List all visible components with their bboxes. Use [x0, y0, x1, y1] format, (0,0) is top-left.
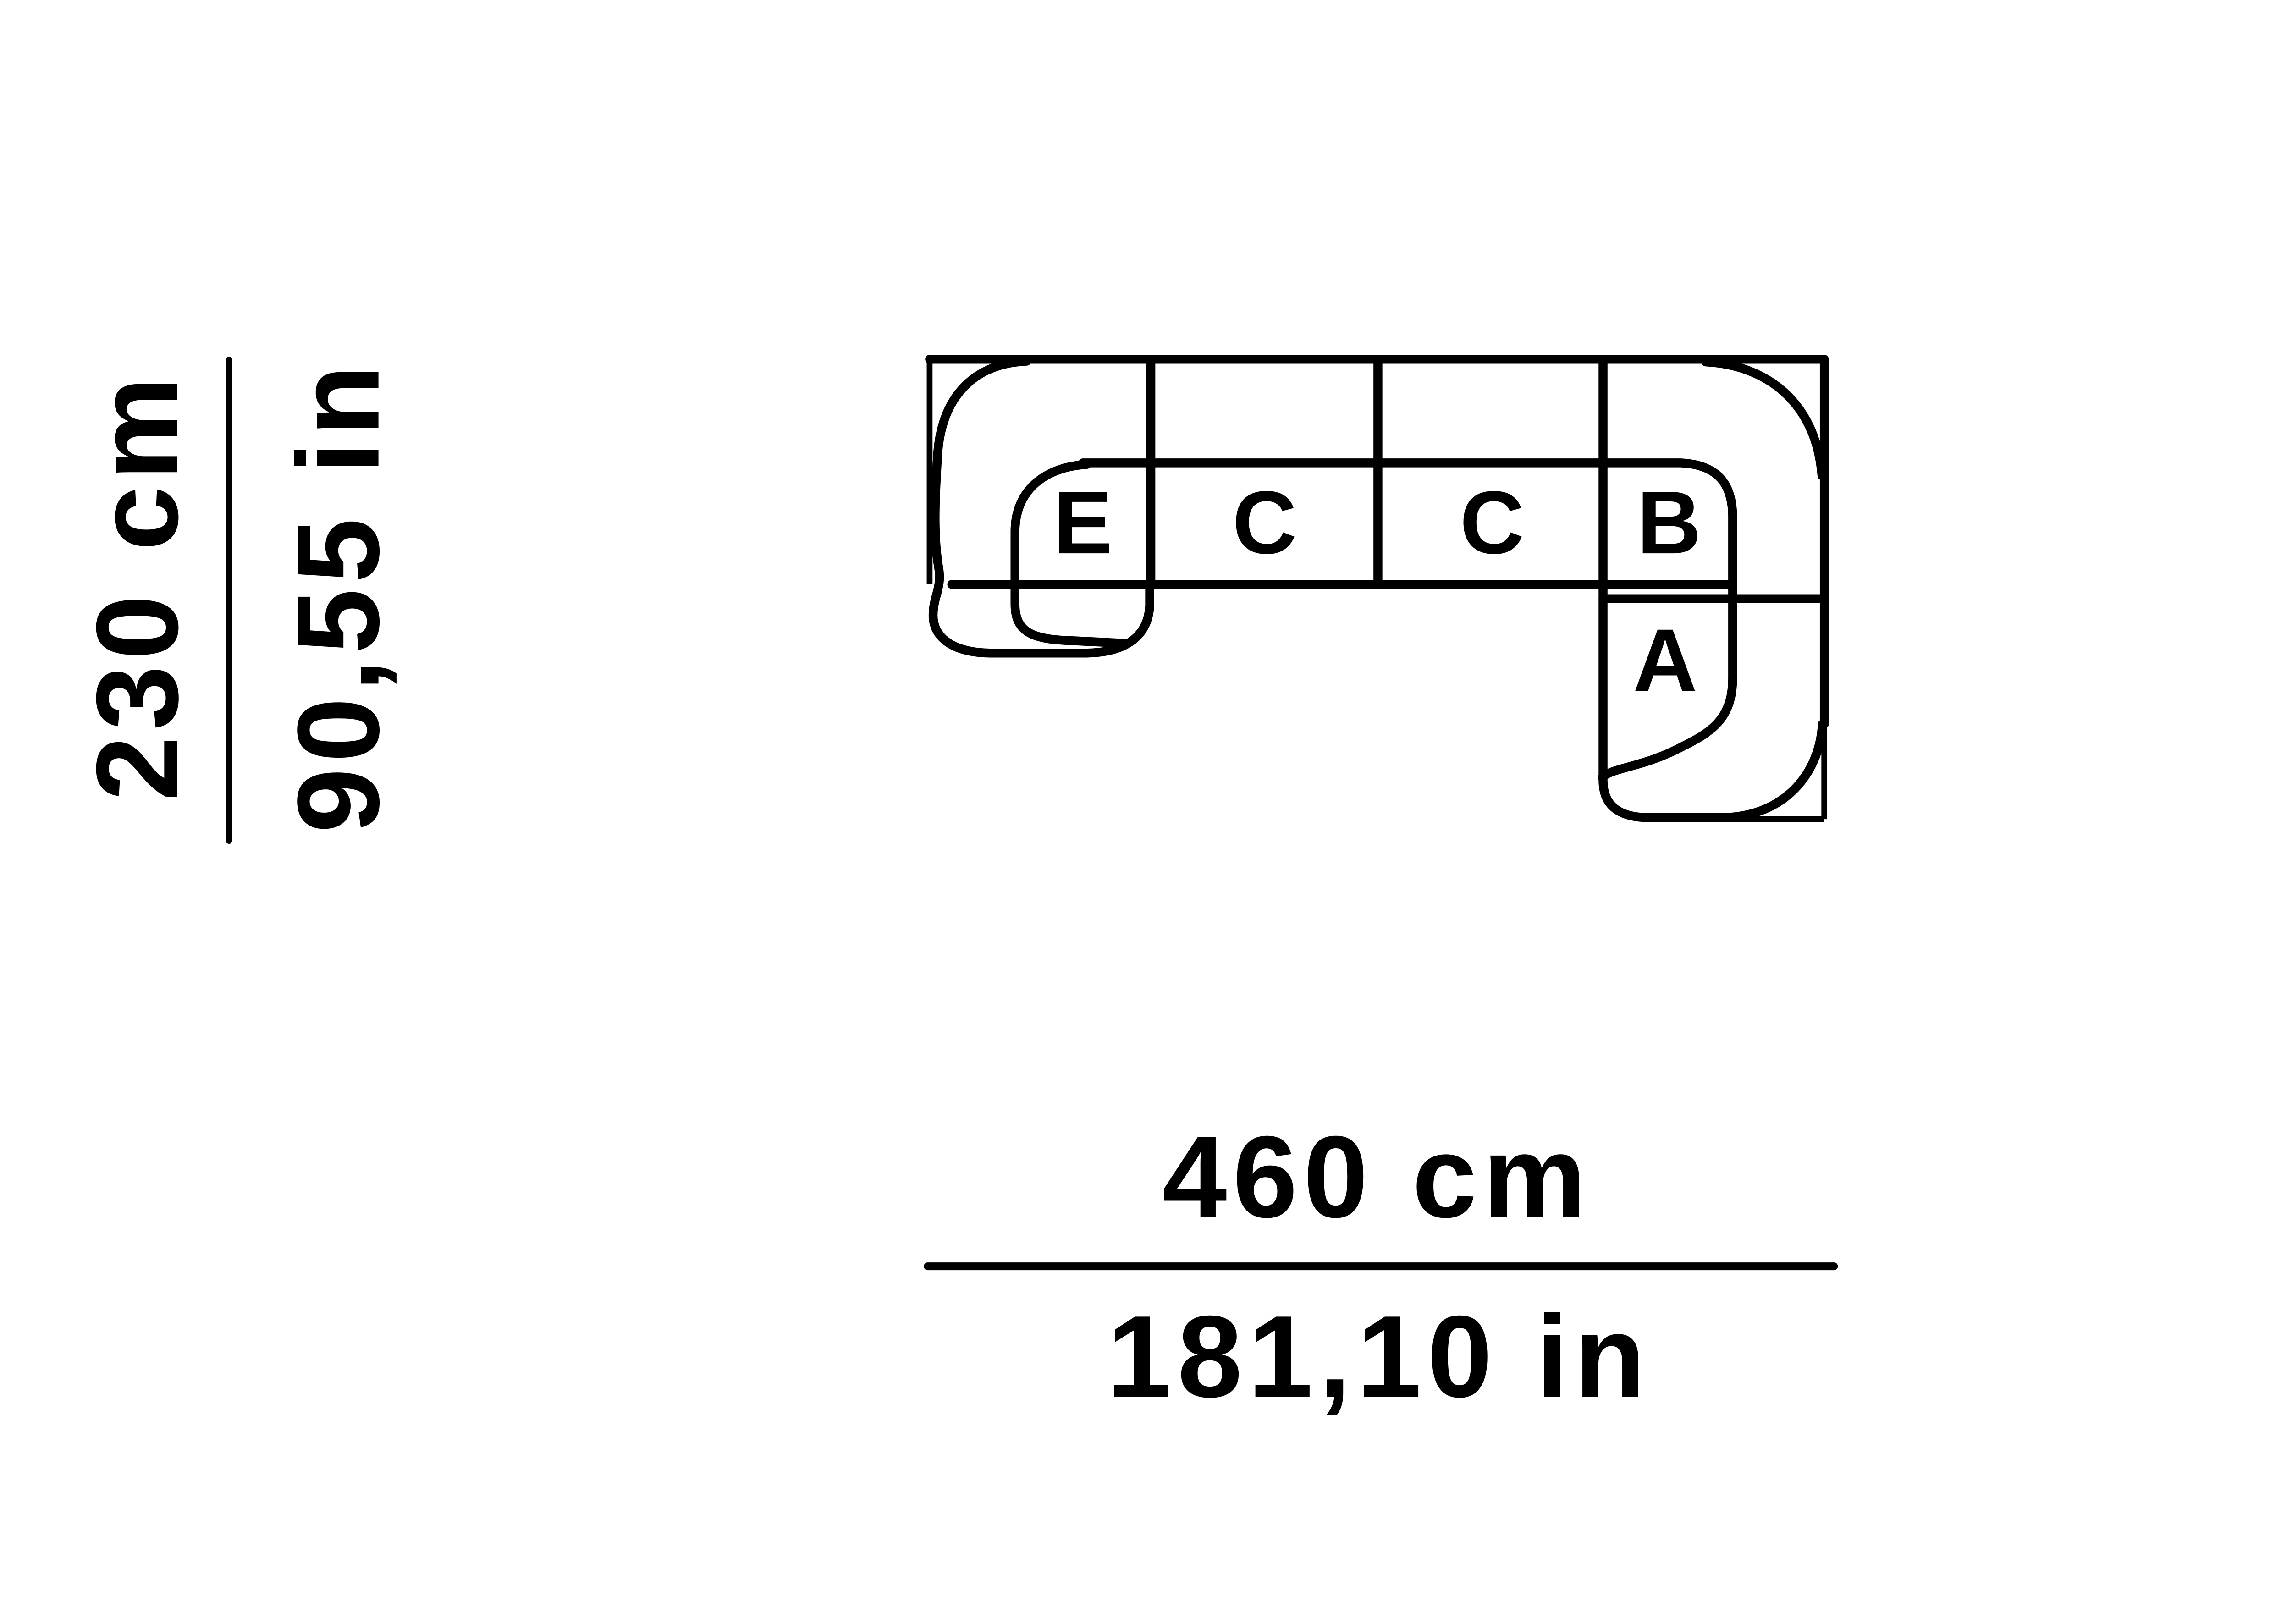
depth-imperial-label: 90,55 in	[273, 359, 403, 833]
module-label-b: B	[1637, 473, 1702, 573]
corner-module-outer-curve	[1706, 362, 1822, 476]
width-dimension-block: 460 cm 181,10 in	[928, 1112, 1834, 1421]
module-label-e: E	[1053, 473, 1113, 573]
depth-metric-label: 230 cm	[72, 371, 202, 801]
module-a-bottom-edge	[1647, 724, 1822, 818]
sofa-dimension-diagram: 230 cm 90,55 in 460 cm 181,10 in	[0, 0, 2292, 1624]
sofa-outline	[930, 359, 1824, 818]
width-metric-label: 460 cm	[1162, 1112, 1592, 1242]
module-label-a: A	[1633, 611, 1697, 710]
width-imperial-label: 181,10 in	[1107, 1291, 1652, 1421]
module-label-c2: C	[1460, 473, 1525, 573]
armrest-outer-line	[933, 361, 1150, 653]
module-label-c1: C	[1232, 473, 1297, 573]
module-divider-3-and-a-left-edge	[1603, 362, 1647, 818]
depth-dimension-block: 230 cm 90,55 in	[72, 359, 403, 840]
